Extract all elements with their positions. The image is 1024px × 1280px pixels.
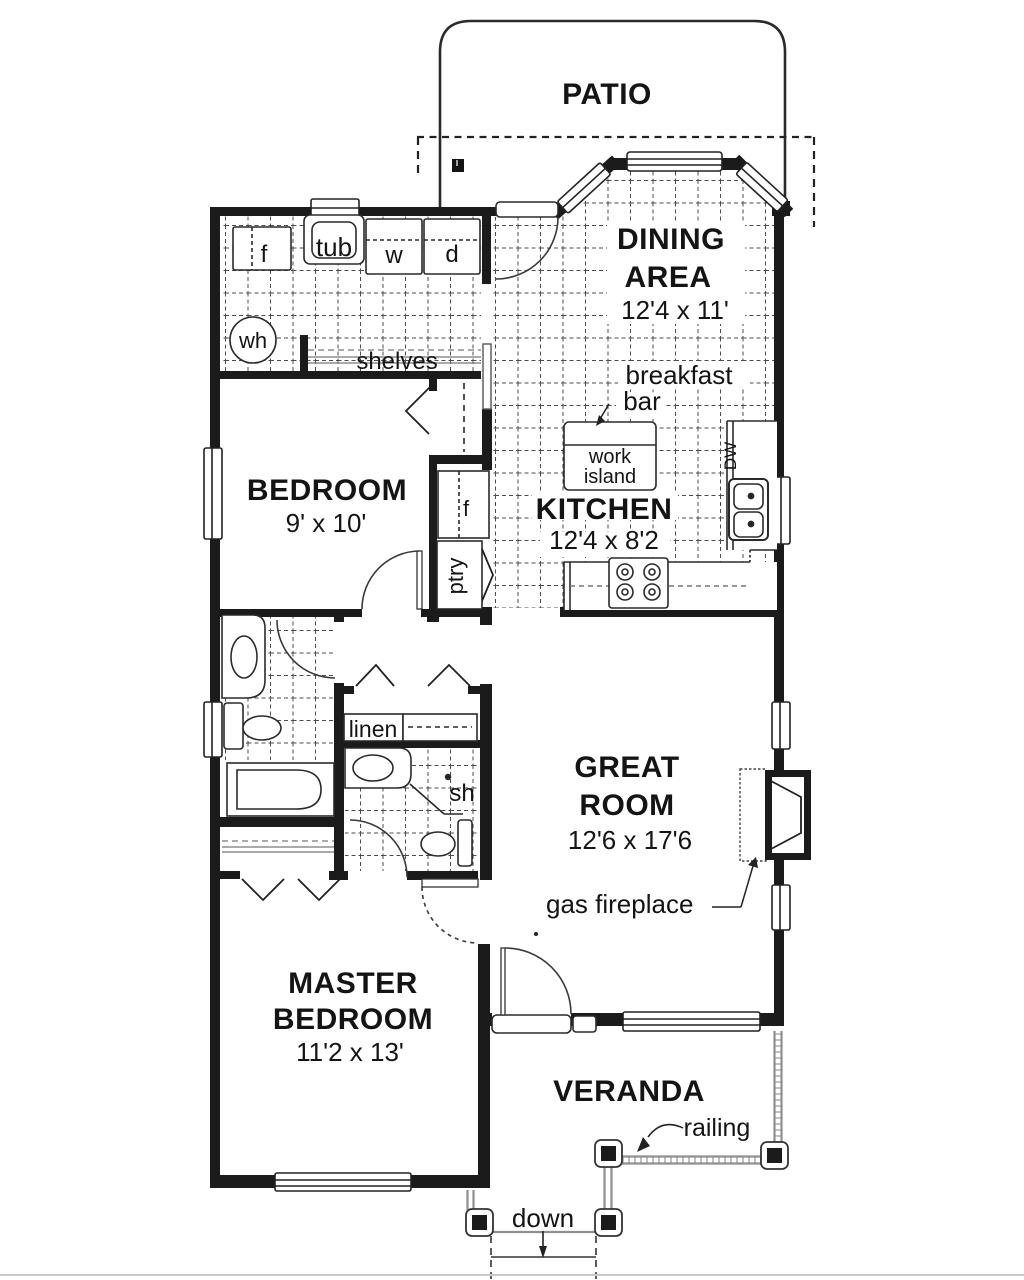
svg-text:tub: tub xyxy=(316,232,352,262)
svg-text:d: d xyxy=(445,241,458,268)
svg-text:9' x 10': 9' x 10' xyxy=(286,508,367,538)
svg-text:railing: railing xyxy=(684,1114,751,1142)
svg-text:linen: linen xyxy=(349,716,398,742)
svg-text:gas fireplace: gas fireplace xyxy=(546,889,693,919)
svg-text:island: island xyxy=(584,466,636,488)
svg-text:PATIO: PATIO xyxy=(562,78,652,111)
svg-text:DW: DW xyxy=(721,442,740,470)
svg-text:11'2 x 13': 11'2 x 13' xyxy=(296,1037,404,1067)
svg-text:ptry: ptry xyxy=(443,558,468,595)
svg-text:sh: sh xyxy=(449,780,474,807)
svg-text:MASTER: MASTER xyxy=(288,967,418,1000)
svg-text:DINING: DINING xyxy=(617,223,725,256)
svg-text:down: down xyxy=(512,1203,574,1233)
svg-text:work: work xyxy=(588,446,632,468)
svg-text:12'4 x 8'2: 12'4 x 8'2 xyxy=(549,525,659,555)
svg-text:KITCHEN: KITCHEN xyxy=(536,493,673,526)
svg-text:BEDROOM: BEDROOM xyxy=(273,1003,433,1036)
svg-text:wh: wh xyxy=(238,328,267,353)
svg-text:w: w xyxy=(384,242,403,269)
svg-text:AREA: AREA xyxy=(624,261,711,294)
svg-text:f: f xyxy=(261,241,268,268)
svg-text:GREAT: GREAT xyxy=(574,751,679,784)
svg-text:12'4 x 11': 12'4 x 11' xyxy=(621,295,729,325)
svg-text:shelves: shelves xyxy=(356,348,437,375)
svg-text:12'6 x 17'6: 12'6 x 17'6 xyxy=(568,825,692,855)
svg-text:VERANDA: VERANDA xyxy=(553,1075,705,1108)
svg-text:bar: bar xyxy=(623,386,661,416)
svg-text:f: f xyxy=(463,496,470,521)
svg-text:ROOM: ROOM xyxy=(579,789,674,822)
svg-text:BEDROOM: BEDROOM xyxy=(247,474,407,507)
